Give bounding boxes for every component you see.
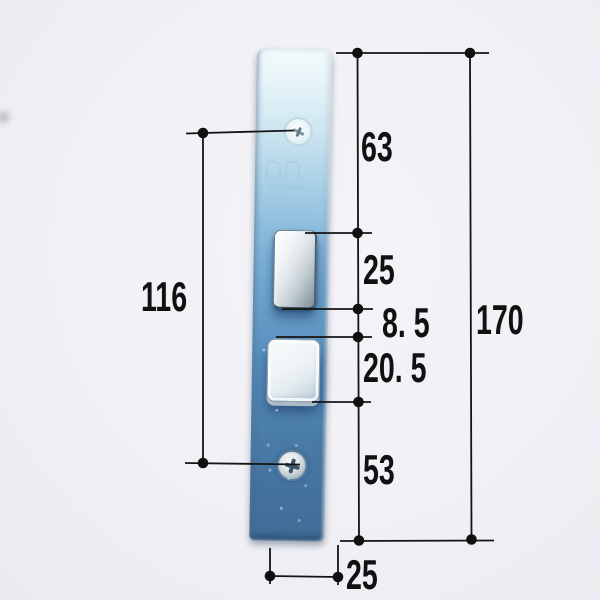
- dimension-label-25-upper: 25: [363, 249, 395, 291]
- dimension-dot: [353, 397, 364, 408]
- dimension-label-63: 63: [361, 126, 393, 168]
- dimension-dot: [354, 535, 365, 546]
- dimension-label-170: 170: [476, 299, 524, 341]
- dimension-line-segments: [358, 53, 360, 541]
- dimension-label-116: 116: [141, 276, 187, 318]
- dimension-line-width-25: [270, 576, 338, 577]
- dimension-dot: [198, 458, 209, 469]
- dimension-line-overall-170: [470, 53, 472, 540]
- dimension-label-20-5: 20. 5: [363, 347, 427, 389]
- dimension-dot: [465, 48, 476, 59]
- product-dimension-photo: 63 25 8. 5 20. 5 53 116 170 25: [0, 0, 600, 600]
- dimension-dot: [265, 571, 276, 582]
- dimension-dot: [353, 304, 364, 315]
- dimension-dot: [352, 228, 363, 239]
- dimension-dot: [353, 332, 364, 343]
- dimension-label-53: 53: [363, 449, 395, 491]
- dimension-dot: [198, 128, 209, 139]
- dimension-dot: [352, 48, 363, 59]
- dimension-label-8-5: 8. 5: [382, 302, 430, 344]
- dimension-label-25-width: 25: [346, 554, 378, 596]
- dimension-dot: [466, 534, 477, 545]
- dimension-dot: [333, 572, 344, 583]
